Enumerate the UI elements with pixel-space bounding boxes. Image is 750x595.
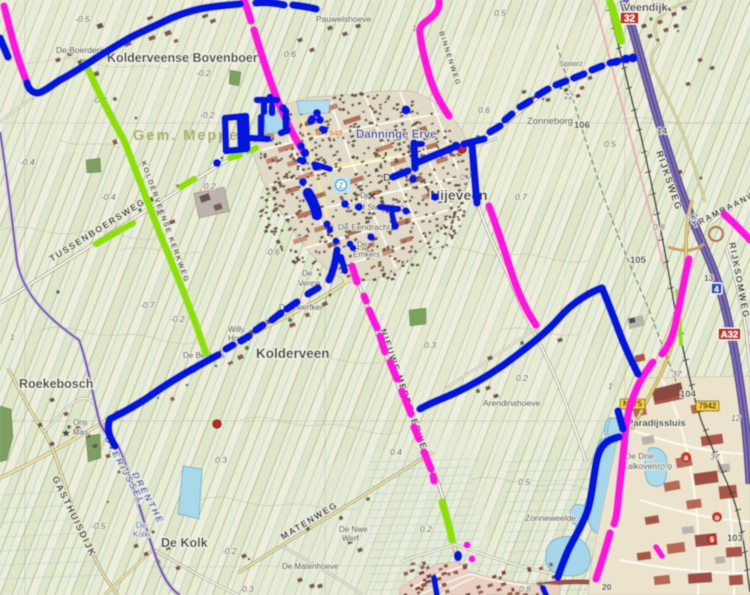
svg-text:Danninge Erve: Danninge Erve [356, 129, 437, 141]
svg-text:A32: A32 [721, 330, 738, 341]
svg-text:106: 106 [574, 120, 590, 131]
svg-text:Kolk: Kolk [133, 530, 150, 539]
svg-text:104: 104 [680, 389, 697, 400]
svg-text:Paradijssluis: Paradijssluis [627, 418, 686, 429]
svg-text:0.2: 0.2 [516, 373, 528, 383]
svg-text:Werf: Werf [342, 534, 360, 543]
svg-text:7942: 7942 [699, 402, 717, 411]
svg-text:De Eendracht: De Eendracht [338, 222, 391, 232]
svg-text:-0.7: -0.7 [140, 300, 155, 310]
svg-text:De Drie: De Drie [625, 451, 654, 461]
svg-text:De Nwe: De Nwe [339, 525, 368, 534]
svg-text:Kalkovens: Kalkovens [622, 461, 661, 471]
svg-text:0.3: 0.3 [424, 340, 436, 350]
svg-text:0.8: 0.8 [653, 222, 665, 232]
svg-text:Emkers: Emkers [353, 250, 380, 259]
svg-text:Pauwelshoeve: Pauwelshoeve [316, 14, 372, 24]
svg-text:-0.3: -0.3 [239, 584, 254, 594]
svg-text:103: 103 [727, 533, 743, 544]
svg-text:22: 22 [563, 91, 574, 101]
svg-text:0.2: 0.2 [420, 524, 432, 534]
svg-text:De: De [302, 269, 313, 278]
svg-text:De: De [136, 521, 147, 530]
svg-text:37: 37 [710, 452, 720, 462]
svg-text:-0.2: -0.2 [196, 68, 211, 78]
svg-text:0.7: 0.7 [515, 192, 527, 202]
svg-text:De: De [357, 240, 368, 249]
svg-text:0.5: 0.5 [518, 477, 530, 487]
svg-text:-0.2: -0.2 [170, 314, 185, 324]
svg-text:-0.4: -0.4 [101, 192, 116, 202]
svg-text:Zonneweelde: Zonneweelde [525, 513, 576, 523]
svg-text:-0.2: -0.2 [222, 546, 237, 556]
svg-text:0.8: 0.8 [519, 584, 531, 594]
svg-text:0.4: 0.4 [390, 447, 402, 457]
svg-text:0.7: 0.7 [686, 212, 698, 222]
svg-text:De Kolk: De Kolk [161, 536, 208, 550]
svg-text:Arendinahoeve: Arendinahoeve [483, 398, 540, 408]
svg-text:Spoorz: Spoorz [559, 59, 583, 68]
svg-text:0.5: 0.5 [494, 8, 506, 18]
svg-text:105: 105 [630, 255, 647, 266]
svg-text:Kolderveen: Kolderveen [256, 346, 330, 361]
svg-text:-0.4: -0.4 [20, 157, 35, 167]
svg-text:Zonneborg: Zonneborg [527, 116, 573, 127]
svg-text:4: 4 [714, 285, 719, 294]
svg-text:20: 20 [602, 582, 612, 592]
svg-text:0.3: 0.3 [215, 455, 227, 465]
svg-text:1: 1 [608, 381, 613, 391]
svg-text:0.6: 0.6 [284, 49, 296, 59]
svg-text:0.5: 0.5 [604, 139, 616, 149]
svg-text:Mas: Mas [73, 428, 88, 437]
svg-text:-0.2: -0.2 [200, 110, 215, 120]
svg-text:Z: Z [339, 181, 344, 190]
svg-text:32: 32 [624, 14, 636, 25]
svg-text:Kolderveense Bovenboer: Kolderveense Bovenboer [107, 51, 258, 65]
svg-text:Roekebosch: Roekebosch [19, 377, 93, 391]
svg-text:0.9: 0.9 [660, 462, 672, 472]
svg-text:Willy: Willy [228, 325, 245, 334]
svg-text:-0.5: -0.5 [75, 14, 90, 24]
svg-text:o: o [715, 515, 719, 522]
svg-text:0.6: 0.6 [478, 105, 490, 115]
svg-text:5: 5 [710, 537, 714, 544]
svg-text:a: a [684, 455, 688, 462]
svg-text:-0.5: -0.5 [91, 521, 106, 531]
svg-text:12: 12 [731, 413, 741, 423]
svg-text:37: 37 [672, 369, 682, 379]
svg-text:0.7: 0.7 [460, 172, 472, 182]
svg-text:1: 1 [10, 332, 15, 342]
svg-text:Ons: Ons [73, 418, 88, 427]
svg-text:13: 13 [704, 273, 714, 283]
svg-text:De Matenhoeve: De Matenhoeve [282, 562, 339, 571]
svg-text:14: 14 [657, 126, 667, 136]
svg-text:-0.6: -0.6 [265, 247, 280, 257]
svg-text:-0.2: -0.2 [201, 181, 216, 191]
